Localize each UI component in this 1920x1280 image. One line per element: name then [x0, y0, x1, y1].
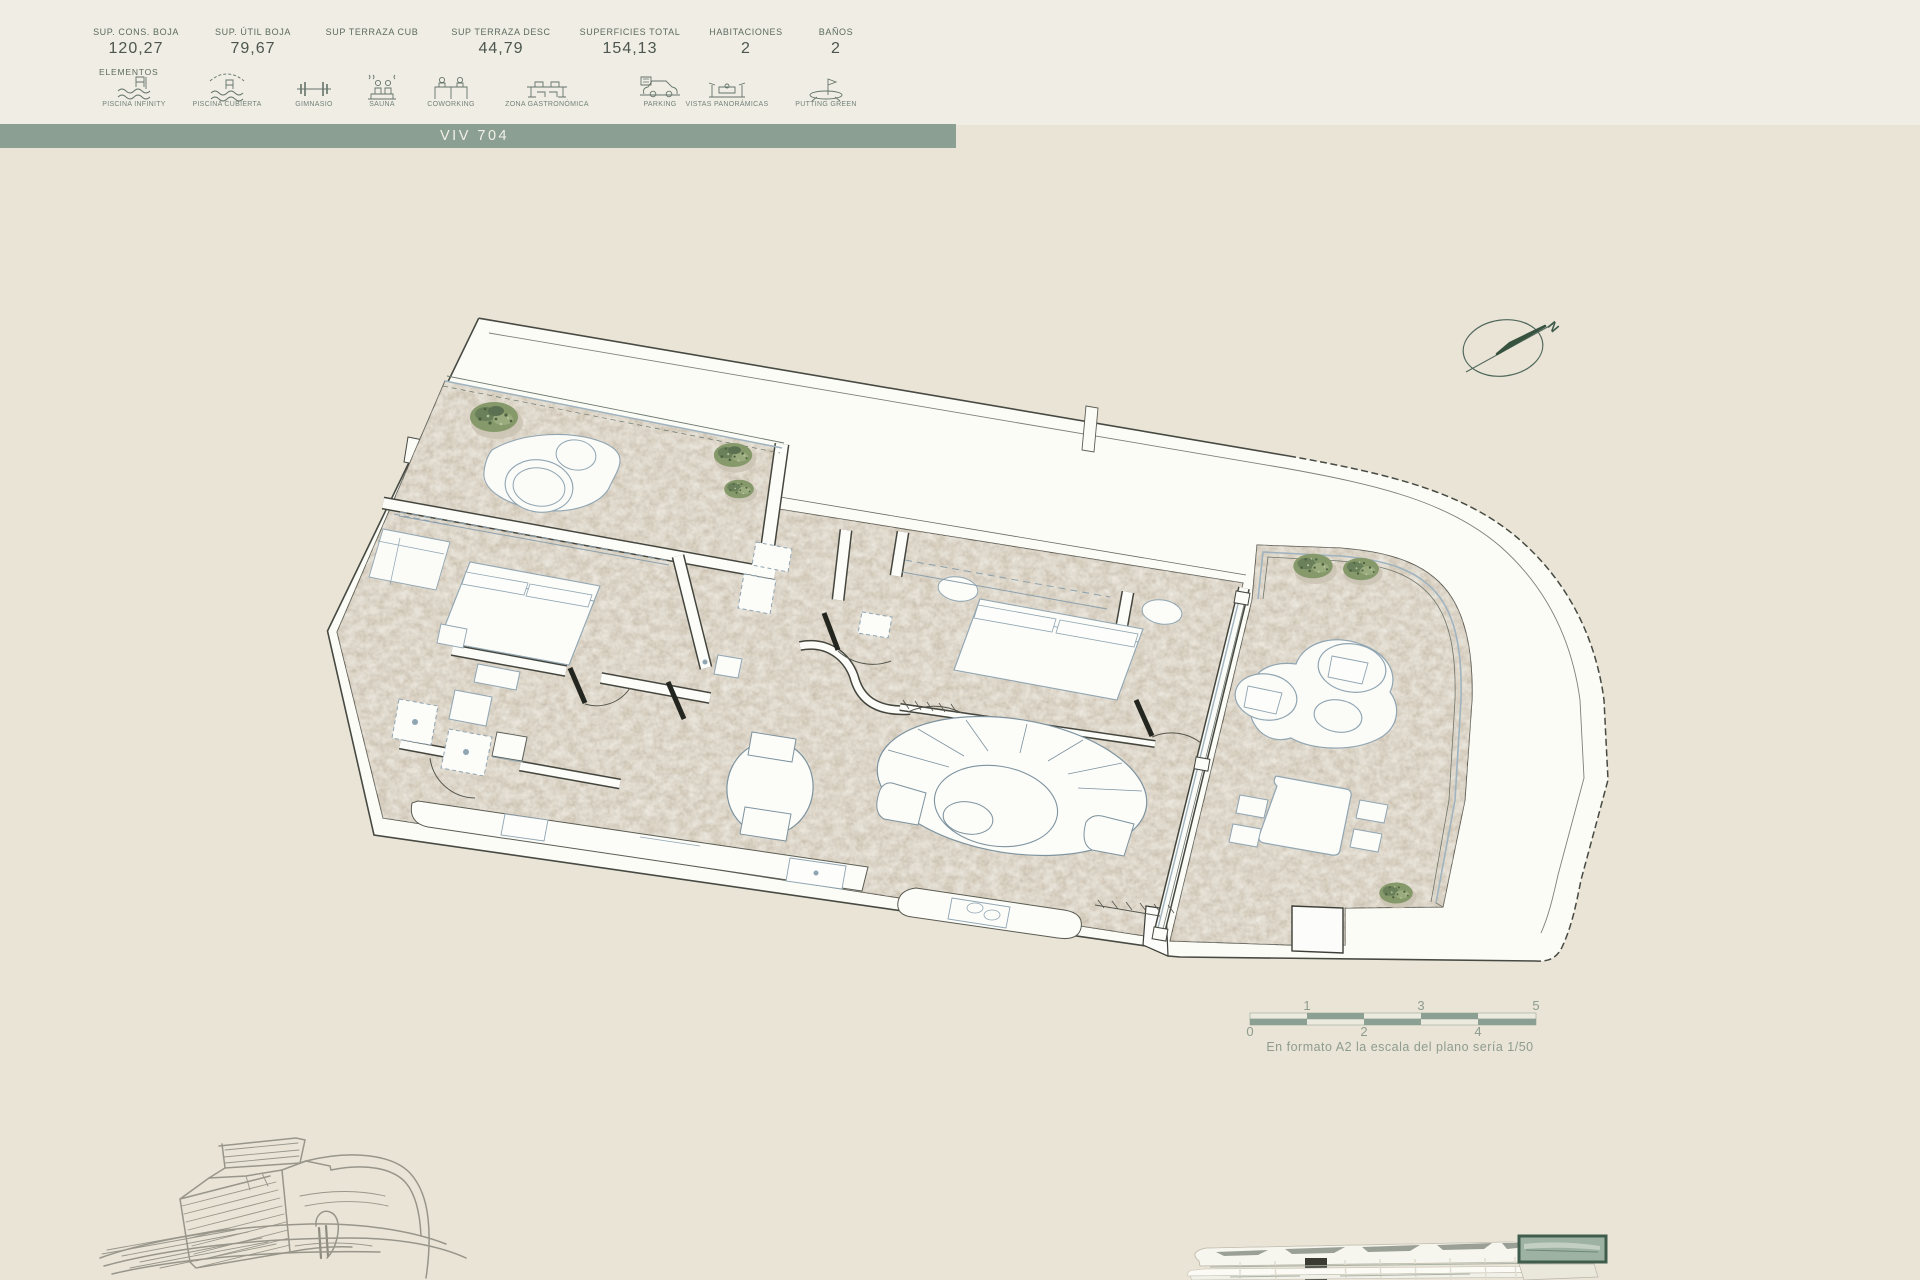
svg-text:3: 3: [1417, 998, 1424, 1013]
svg-text:1: 1: [1303, 998, 1310, 1013]
svg-text:N: N: [1545, 318, 1563, 335]
svg-text:En formato A2 la escala del p: En formato A2 la escala del plano sería …: [1266, 1040, 1533, 1054]
svg-text:5: 5: [1532, 998, 1539, 1013]
svg-text:2: 2: [1360, 1024, 1367, 1039]
svg-text:4: 4: [1474, 1024, 1481, 1039]
svg-text:0: 0: [1246, 1024, 1253, 1039]
